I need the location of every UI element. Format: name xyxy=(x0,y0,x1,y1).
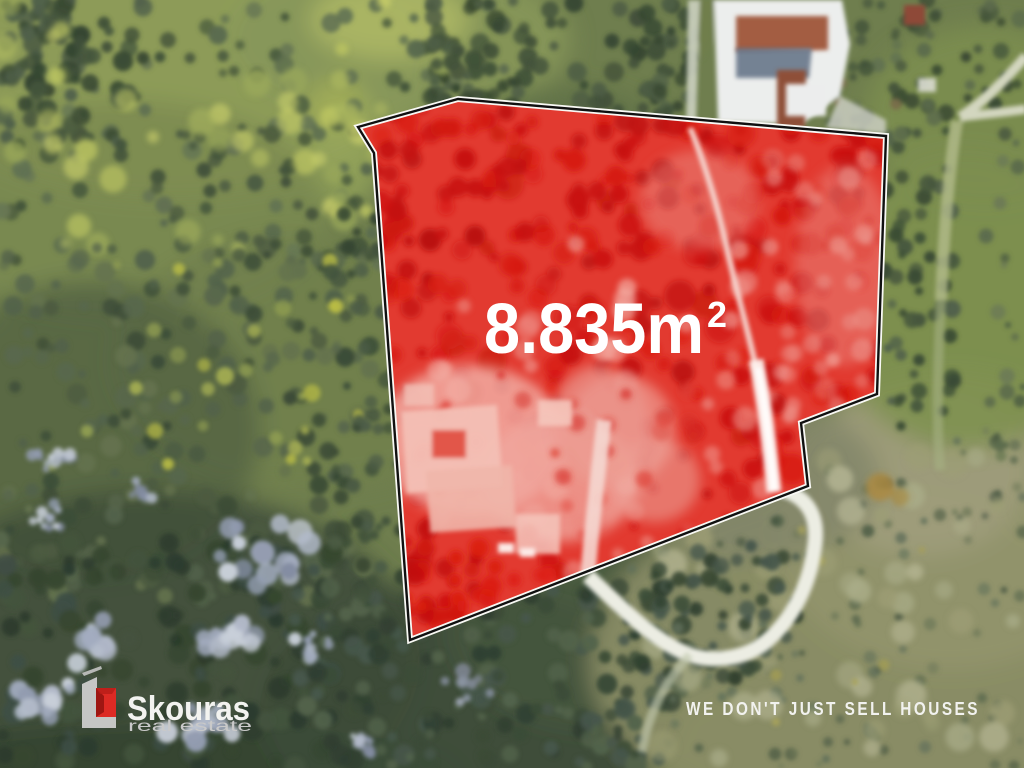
svg-text:8.835m: 8.835m xyxy=(484,290,704,369)
svg-text:WE DON'T JUST SELL HOUSES: WE DON'T JUST SELL HOUSES xyxy=(686,698,980,719)
svg-text:real estate: real estate xyxy=(128,718,252,735)
svg-text:2: 2 xyxy=(707,294,727,335)
